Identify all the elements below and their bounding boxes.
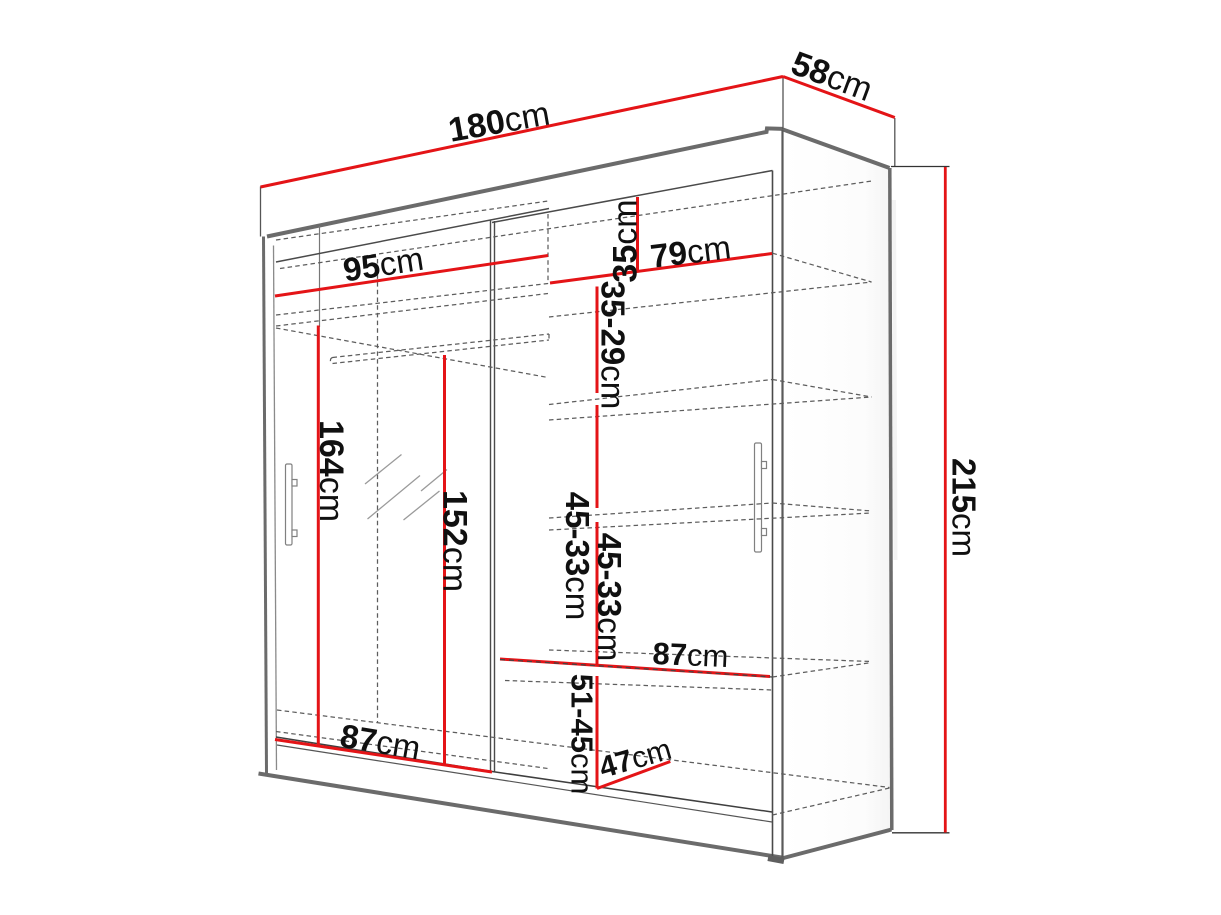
svg-text:164cm: 164cm bbox=[312, 420, 350, 522]
svg-text:152cm: 152cm bbox=[436, 490, 474, 592]
svg-text:87cm: 87cm bbox=[652, 636, 729, 674]
svg-text:51-45cm: 51-45cm bbox=[565, 674, 600, 795]
svg-text:215cm: 215cm bbox=[946, 458, 983, 557]
svg-text:45-33cm: 45-33cm bbox=[559, 492, 596, 620]
svg-text:45-33cm: 45-33cm bbox=[591, 533, 628, 661]
svg-text:35-29cm: 35-29cm bbox=[595, 281, 632, 409]
svg-text:35cm: 35cm bbox=[607, 199, 645, 282]
